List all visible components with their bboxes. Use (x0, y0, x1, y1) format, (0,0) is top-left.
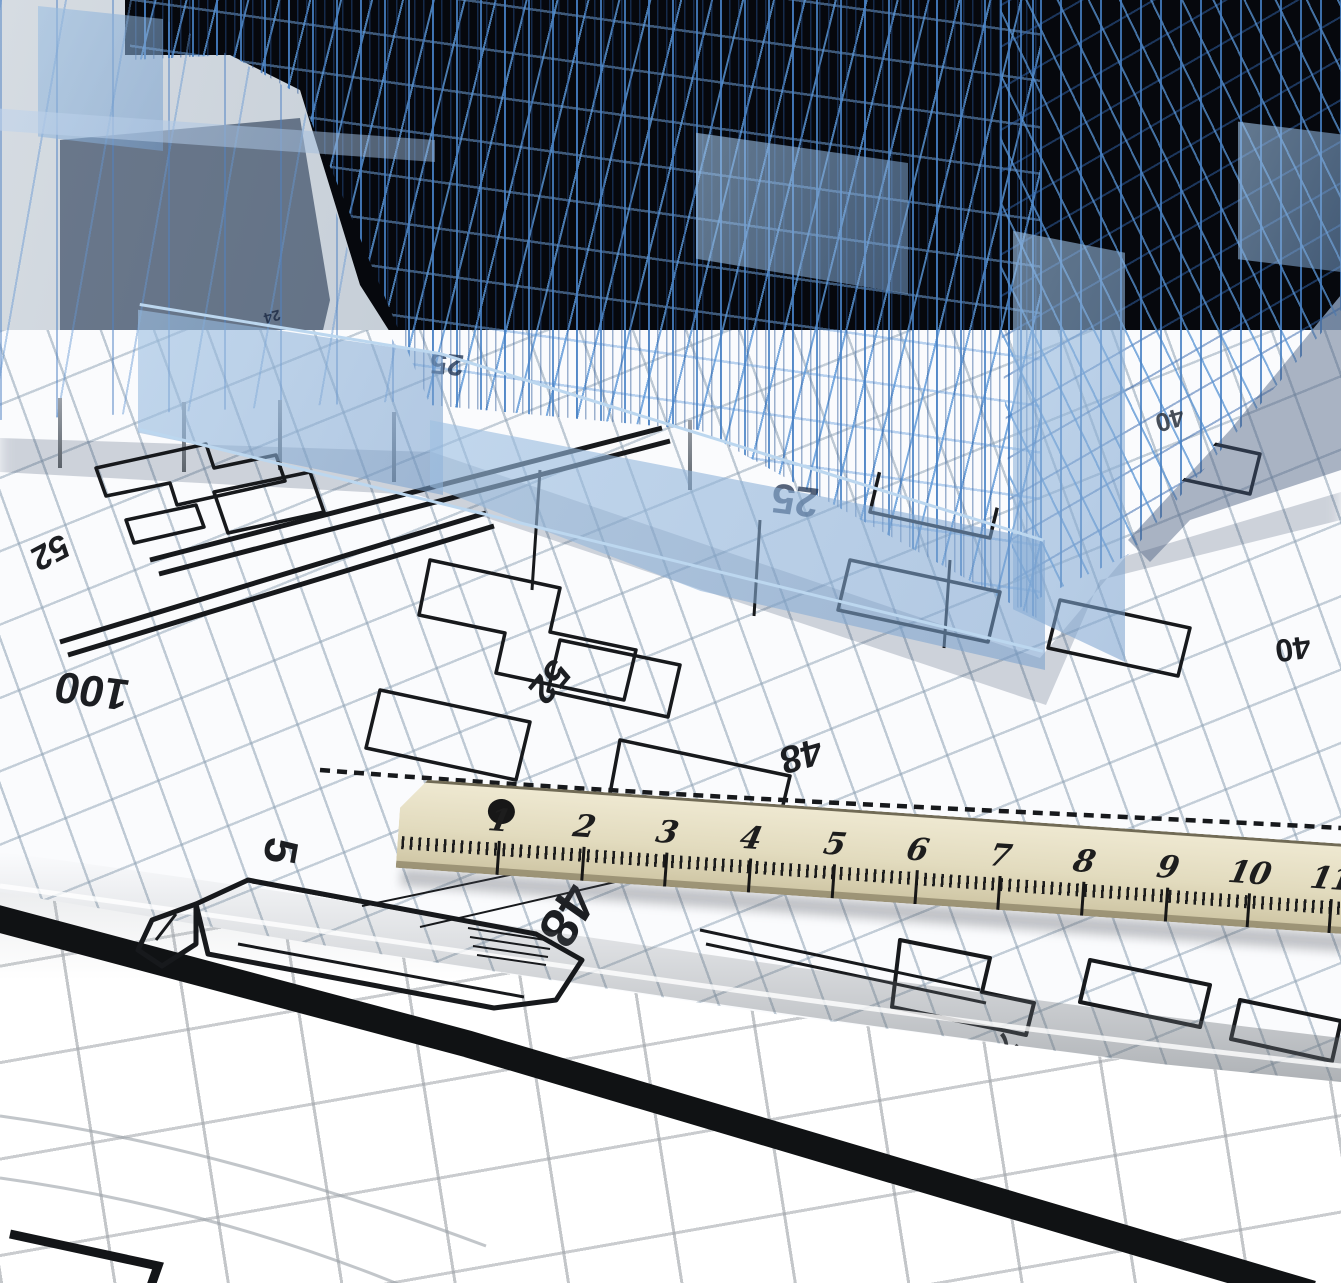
ruler-number: 2 (570, 808, 598, 845)
ruler-number: 4 (737, 820, 765, 857)
blueprint-scene: 52 100 25 24 25 52 48 40 40 5 48 7 (0, 0, 1341, 1283)
ruler-number: 6 (903, 832, 931, 869)
ruler-number: 3 (653, 814, 681, 851)
ruler-number: 8 (1070, 843, 1098, 880)
corner-drawing-rectangle (10, 1234, 158, 1283)
ruler-number: 9 (1154, 849, 1182, 886)
ruler-number: 7 (986, 837, 1014, 874)
ruler-number: 5 (820, 826, 848, 863)
ruler-number: 10 (1225, 854, 1274, 892)
ruler-number: 11 (1307, 860, 1341, 898)
overlay-linework (0, 0, 1341, 1283)
plan-border-band (0, 916, 1312, 1283)
